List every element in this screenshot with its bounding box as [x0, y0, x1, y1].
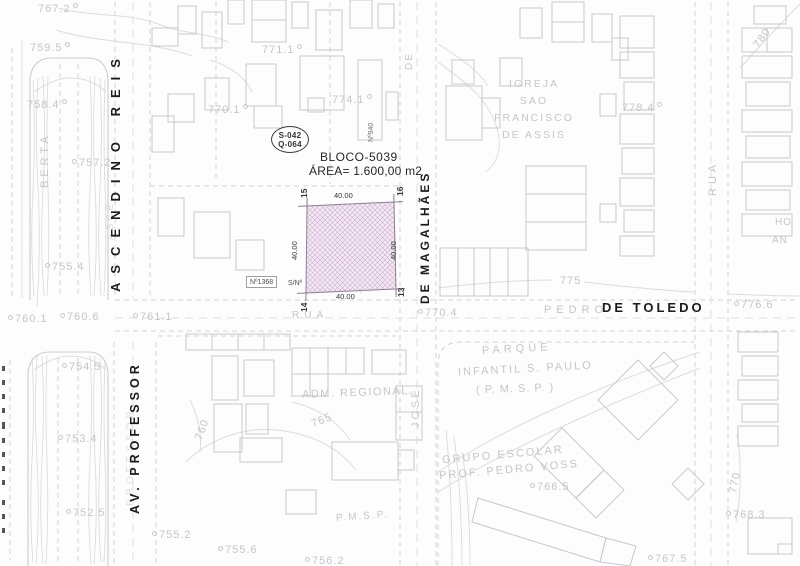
plot-area-label: ÁREA= 1.600,00 m2 — [309, 165, 422, 177]
sheet-ref-line2: Q-064 — [272, 140, 308, 149]
elevation-label: 766.5 — [530, 482, 570, 493]
igreja-line4: DE ASSIS — [482, 127, 586, 144]
corner-label-15: 15 — [300, 189, 309, 198]
address-box-1368: Nº1368 — [246, 276, 277, 288]
street-label-ascendino-reis: ASCENDINO REIS — [109, 50, 122, 292]
dimension-top: 40.00 — [334, 192, 353, 200]
street-centerlines — [115, 2, 798, 566]
elevation-label: 760.1 — [8, 314, 48, 325]
street-label-rua-plot: RUA — [292, 311, 328, 321]
elevation-label: 755.6 — [218, 545, 258, 556]
street-label-av-professor: AV. PROFESSOR — [129, 361, 142, 514]
corner-label-13: 13 — [397, 288, 406, 297]
parcel-hatch — [306, 202, 396, 293]
elevation-label: 759.5 — [30, 42, 70, 54]
place-label-igreja: IGREJA SAO FRANCISCO DE ASSIS — [482, 76, 586, 144]
dimension-right: 40.00 — [390, 241, 398, 260]
elevation-label: 778.4 — [622, 102, 662, 114]
address-n940: Nº940 — [368, 123, 375, 142]
igreja-line2: SAO — [482, 93, 586, 110]
elevation-label: 760.6 — [60, 312, 100, 323]
elevation-label: 753.4 — [58, 434, 98, 445]
elevation-label: 767.2 — [38, 3, 78, 15]
street-label-berta: BERTA — [40, 132, 51, 188]
cadastral-map: 767.2 759.5 758.4 757.2 755.4 771.1 770.… — [0, 0, 800, 566]
elevation-label: 754.5 — [62, 362, 102, 373]
left-edge-marks — [2, 366, 5, 533]
street-label-rua-right: RUA — [708, 161, 719, 196]
contour-label-775: 775 — [558, 276, 583, 287]
street-label-pedro: PEDRO — [544, 305, 608, 316]
street-label-de-magalhaes: DE MAGALHÃES — [419, 171, 431, 304]
plot-block-label: BLOCO-5039 — [320, 151, 398, 163]
elevation-label: 761.1 — [133, 312, 173, 323]
address-sn: S/Nº — [288, 280, 302, 287]
elevation-label: 767.5 — [648, 554, 688, 565]
dimension-bottom: 40.00 — [336, 293, 355, 301]
street-label-jose: JOSÉ — [411, 387, 422, 428]
elevation-label: 756.2 — [305, 556, 345, 566]
street-label-de-toledo: DE TOLEDO — [602, 301, 705, 314]
corner-label-16: 16 — [396, 187, 405, 196]
igreja-line3: FRANCISCO — [482, 110, 586, 127]
sheet-ref-line1: S-042 — [272, 131, 308, 140]
igreja-line1: IGREJA — [482, 76, 586, 93]
elevation-label: 757.2 — [72, 158, 112, 169]
place-label-ho-truncated: HO — [775, 218, 792, 228]
elevation-label: 768.3 — [726, 510, 766, 521]
dimension-left: 40.00 — [291, 241, 299, 260]
elevation-label: 755.4 — [45, 262, 85, 273]
elevation-label: 776.6 — [734, 300, 774, 311]
sheet-reference-oval: S-042 Q-064 — [271, 126, 309, 153]
elevation-label: 755.2 — [152, 530, 192, 541]
elevation-label: 770.1 — [208, 104, 248, 116]
elevation-label: 758.4 — [27, 99, 67, 111]
corner-label-14: 14 — [300, 303, 309, 312]
elevation-label: 752.5 — [66, 508, 106, 519]
street-label-de-upper: DE — [405, 52, 415, 70]
elevation-label: 771.1 — [262, 44, 302, 56]
place-label-an-truncated: AN — [772, 236, 788, 246]
elevation-label: 774.1 — [332, 94, 372, 106]
elevation-label: 770.4 — [418, 308, 458, 319]
